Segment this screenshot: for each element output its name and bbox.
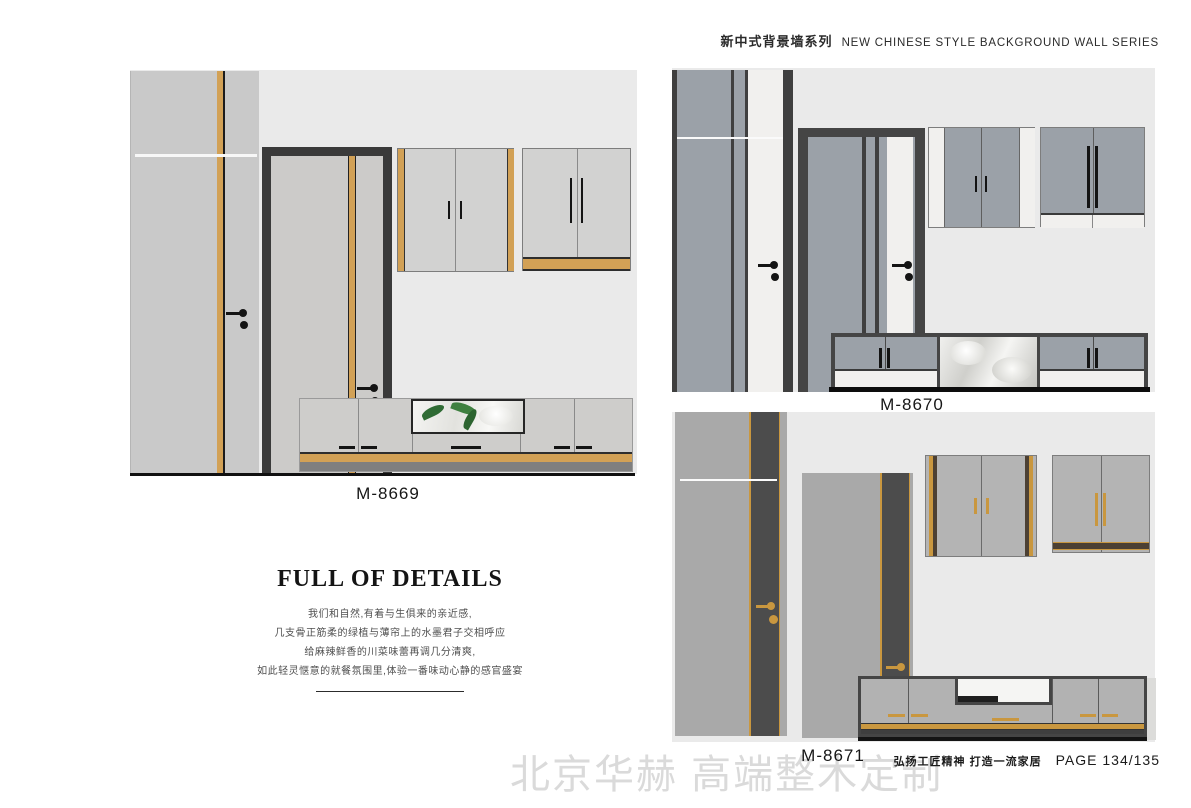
wall-return bbox=[1147, 678, 1156, 740]
niche-shadow bbox=[958, 696, 998, 702]
wall-cabinet bbox=[928, 127, 1035, 228]
wall-cabinet bbox=[397, 148, 514, 272]
door-gap bbox=[981, 128, 982, 227]
details-block: FULL OF DETAILS 我们和自然,有着与生俱来的亲近感, 几支骨正筋柔… bbox=[252, 566, 528, 692]
cabinet-handle bbox=[879, 348, 882, 368]
handle-knob bbox=[767, 602, 775, 610]
handle-knob bbox=[370, 384, 378, 392]
handle-knob bbox=[770, 261, 778, 269]
cabinet-handle bbox=[576, 446, 592, 449]
design-m8670: M-8670 bbox=[672, 68, 1155, 420]
wall-cabinet bbox=[1052, 455, 1150, 553]
leaf bbox=[420, 402, 446, 420]
flower bbox=[950, 341, 986, 365]
floor-line bbox=[858, 737, 1147, 741]
tv-cabinet bbox=[299, 398, 633, 472]
cabinet-handle bbox=[361, 446, 377, 449]
gold-stripe bbox=[217, 71, 225, 474]
design-label: M-8671 bbox=[753, 746, 913, 766]
wall-cabinet bbox=[1040, 127, 1145, 227]
cabinet-base bbox=[829, 387, 1150, 392]
cabinet-handle bbox=[1087, 146, 1090, 208]
cabinet-handle bbox=[986, 498, 989, 514]
details-line: 给麻辣鲜香的川菜味蕾再调几分清爽, bbox=[252, 643, 528, 662]
dark-gold-band bbox=[1053, 542, 1149, 550]
cabinet-handle bbox=[1087, 348, 1090, 368]
door-gap bbox=[1101, 456, 1102, 552]
handle-knob bbox=[897, 663, 905, 671]
cabinet-handle bbox=[460, 201, 462, 219]
tv-cabinet bbox=[831, 333, 1148, 392]
wall-panel bbox=[672, 70, 793, 392]
page-number: PAGE 134/135 bbox=[1056, 752, 1160, 768]
drawer-handle bbox=[451, 446, 481, 449]
dark-stripe bbox=[749, 412, 780, 736]
door-gap bbox=[455, 149, 456, 271]
details-line: 几支骨正筋柔的绿植与薄帘上的水墨君子交相呼应 bbox=[252, 624, 528, 643]
flower bbox=[992, 357, 1032, 383]
design-m8671: M-8671 bbox=[672, 410, 1155, 775]
door-gap bbox=[1093, 128, 1094, 213]
lock-knob bbox=[769, 615, 778, 624]
cabinet-handle bbox=[974, 498, 977, 514]
flower bbox=[479, 406, 513, 426]
cabinet-handle bbox=[888, 714, 905, 717]
floor-line bbox=[130, 473, 635, 476]
cabinet-handle bbox=[1095, 146, 1098, 208]
cabinet-handle bbox=[975, 176, 977, 192]
gold-band bbox=[523, 257, 630, 271]
cabinet-handle bbox=[985, 176, 987, 192]
drawer-row bbox=[835, 369, 937, 388]
cabinet-handle bbox=[1095, 348, 1098, 368]
handle-knob bbox=[904, 261, 912, 269]
design-m8669: M-8669 bbox=[130, 70, 640, 510]
cabinet-base bbox=[861, 730, 1144, 734]
drawer-handle bbox=[992, 718, 1019, 721]
cabinet-handle bbox=[1103, 493, 1106, 526]
wall-cabinet bbox=[925, 455, 1037, 557]
cabinet-handle bbox=[1102, 714, 1118, 717]
design-label: M-8669 bbox=[308, 484, 468, 504]
dark-stripe bbox=[933, 456, 937, 556]
cabinet-handle bbox=[448, 201, 450, 219]
handle-knob bbox=[239, 309, 247, 317]
series-title-en: NEW CHINESE STYLE BACKGROUND WALL SERIES bbox=[842, 37, 1159, 49]
cabinet-handle bbox=[339, 446, 355, 449]
tv-cabinet bbox=[858, 676, 1147, 737]
open-niche bbox=[955, 679, 1052, 705]
panel-seam-line bbox=[677, 137, 783, 139]
wall-panel bbox=[130, 71, 259, 474]
cabinet-base bbox=[300, 462, 632, 471]
cabinet-handle bbox=[554, 446, 570, 449]
details-line: 我们和自然,有着与生俱来的亲近感, bbox=[252, 605, 528, 624]
gold-stripe bbox=[398, 149, 405, 271]
cabinet-handle bbox=[570, 178, 572, 223]
cabinet-handle bbox=[581, 178, 583, 223]
footer-slogan: 弘扬工匠精神 打造一流家居 bbox=[894, 753, 1042, 769]
wall-panel bbox=[675, 412, 787, 736]
door-gap bbox=[981, 456, 982, 556]
cabinet-bottom-row bbox=[1041, 213, 1144, 228]
cabinet-handle bbox=[911, 714, 928, 717]
gold-band bbox=[861, 723, 1144, 730]
cabinet-handle bbox=[1080, 714, 1096, 717]
cabinet-handle bbox=[887, 348, 890, 368]
panel-seam-line bbox=[680, 479, 777, 481]
details-divider bbox=[316, 691, 464, 692]
drawer-row bbox=[1040, 369, 1144, 388]
details-line: 如此轻灵惬意的就餐氛围里,体验一番味动心静的感官盛宴 bbox=[252, 662, 528, 681]
gold-stripe bbox=[1029, 456, 1033, 556]
cabinet-handle bbox=[1095, 493, 1098, 526]
door-gap bbox=[577, 149, 578, 270]
lock-knob bbox=[905, 273, 913, 281]
panel-seam-line bbox=[135, 154, 257, 157]
page-header: 新中式背景墙系列 NEW CHINESE STYLE BACKGROUND WA… bbox=[721, 31, 1159, 50]
wall-cabinet bbox=[522, 148, 631, 271]
decor-image bbox=[411, 399, 525, 434]
page-footer: 弘扬工匠精神 打造一流家居 PAGE 134/135 bbox=[894, 752, 1160, 769]
catalog-page: 新中式背景墙系列 NEW CHINESE STYLE BACKGROUND WA… bbox=[0, 0, 1191, 808]
details-heading: FULL OF DETAILS bbox=[252, 566, 528, 593]
lock-knob bbox=[240, 321, 248, 329]
decor-image bbox=[937, 337, 1040, 388]
series-title-cn: 新中式背景墙系列 bbox=[721, 31, 833, 50]
gold-stripe bbox=[507, 149, 514, 271]
lock-knob bbox=[771, 273, 779, 281]
